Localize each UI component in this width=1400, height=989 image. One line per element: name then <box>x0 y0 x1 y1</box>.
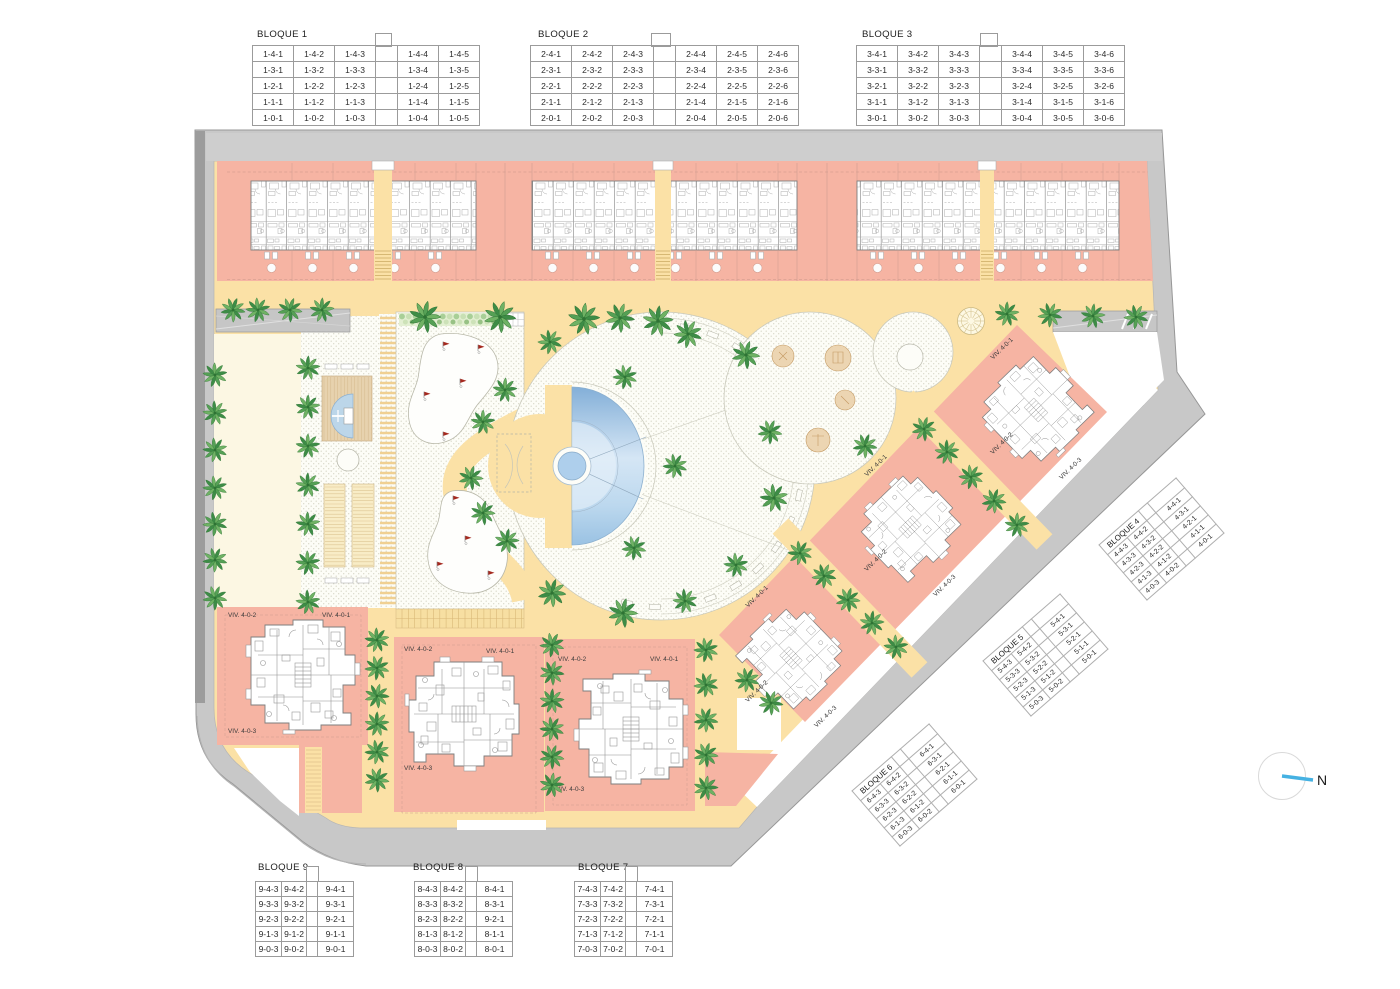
svg-text:VIV. 4-0-2: VIV. 4-0-2 <box>228 612 257 619</box>
svg-text:VIV. 4-0-3: VIV. 4-0-3 <box>404 765 433 772</box>
svg-text:VIV. 4-0-1: VIV. 4-0-1 <box>486 648 515 655</box>
svg-text:N: N <box>1317 772 1327 788</box>
svg-text:VIV. 4-0-1: VIV. 4-0-1 <box>322 612 351 619</box>
svg-text:VIV. 4-0-1: VIV. 4-0-1 <box>650 656 679 663</box>
svg-text:VIV. 4-0-2: VIV. 4-0-2 <box>404 646 433 653</box>
svg-text:VIV. 4-0-3: VIV. 4-0-3 <box>228 728 257 735</box>
svg-text:VIV. 4-0-2: VIV. 4-0-2 <box>558 656 587 663</box>
